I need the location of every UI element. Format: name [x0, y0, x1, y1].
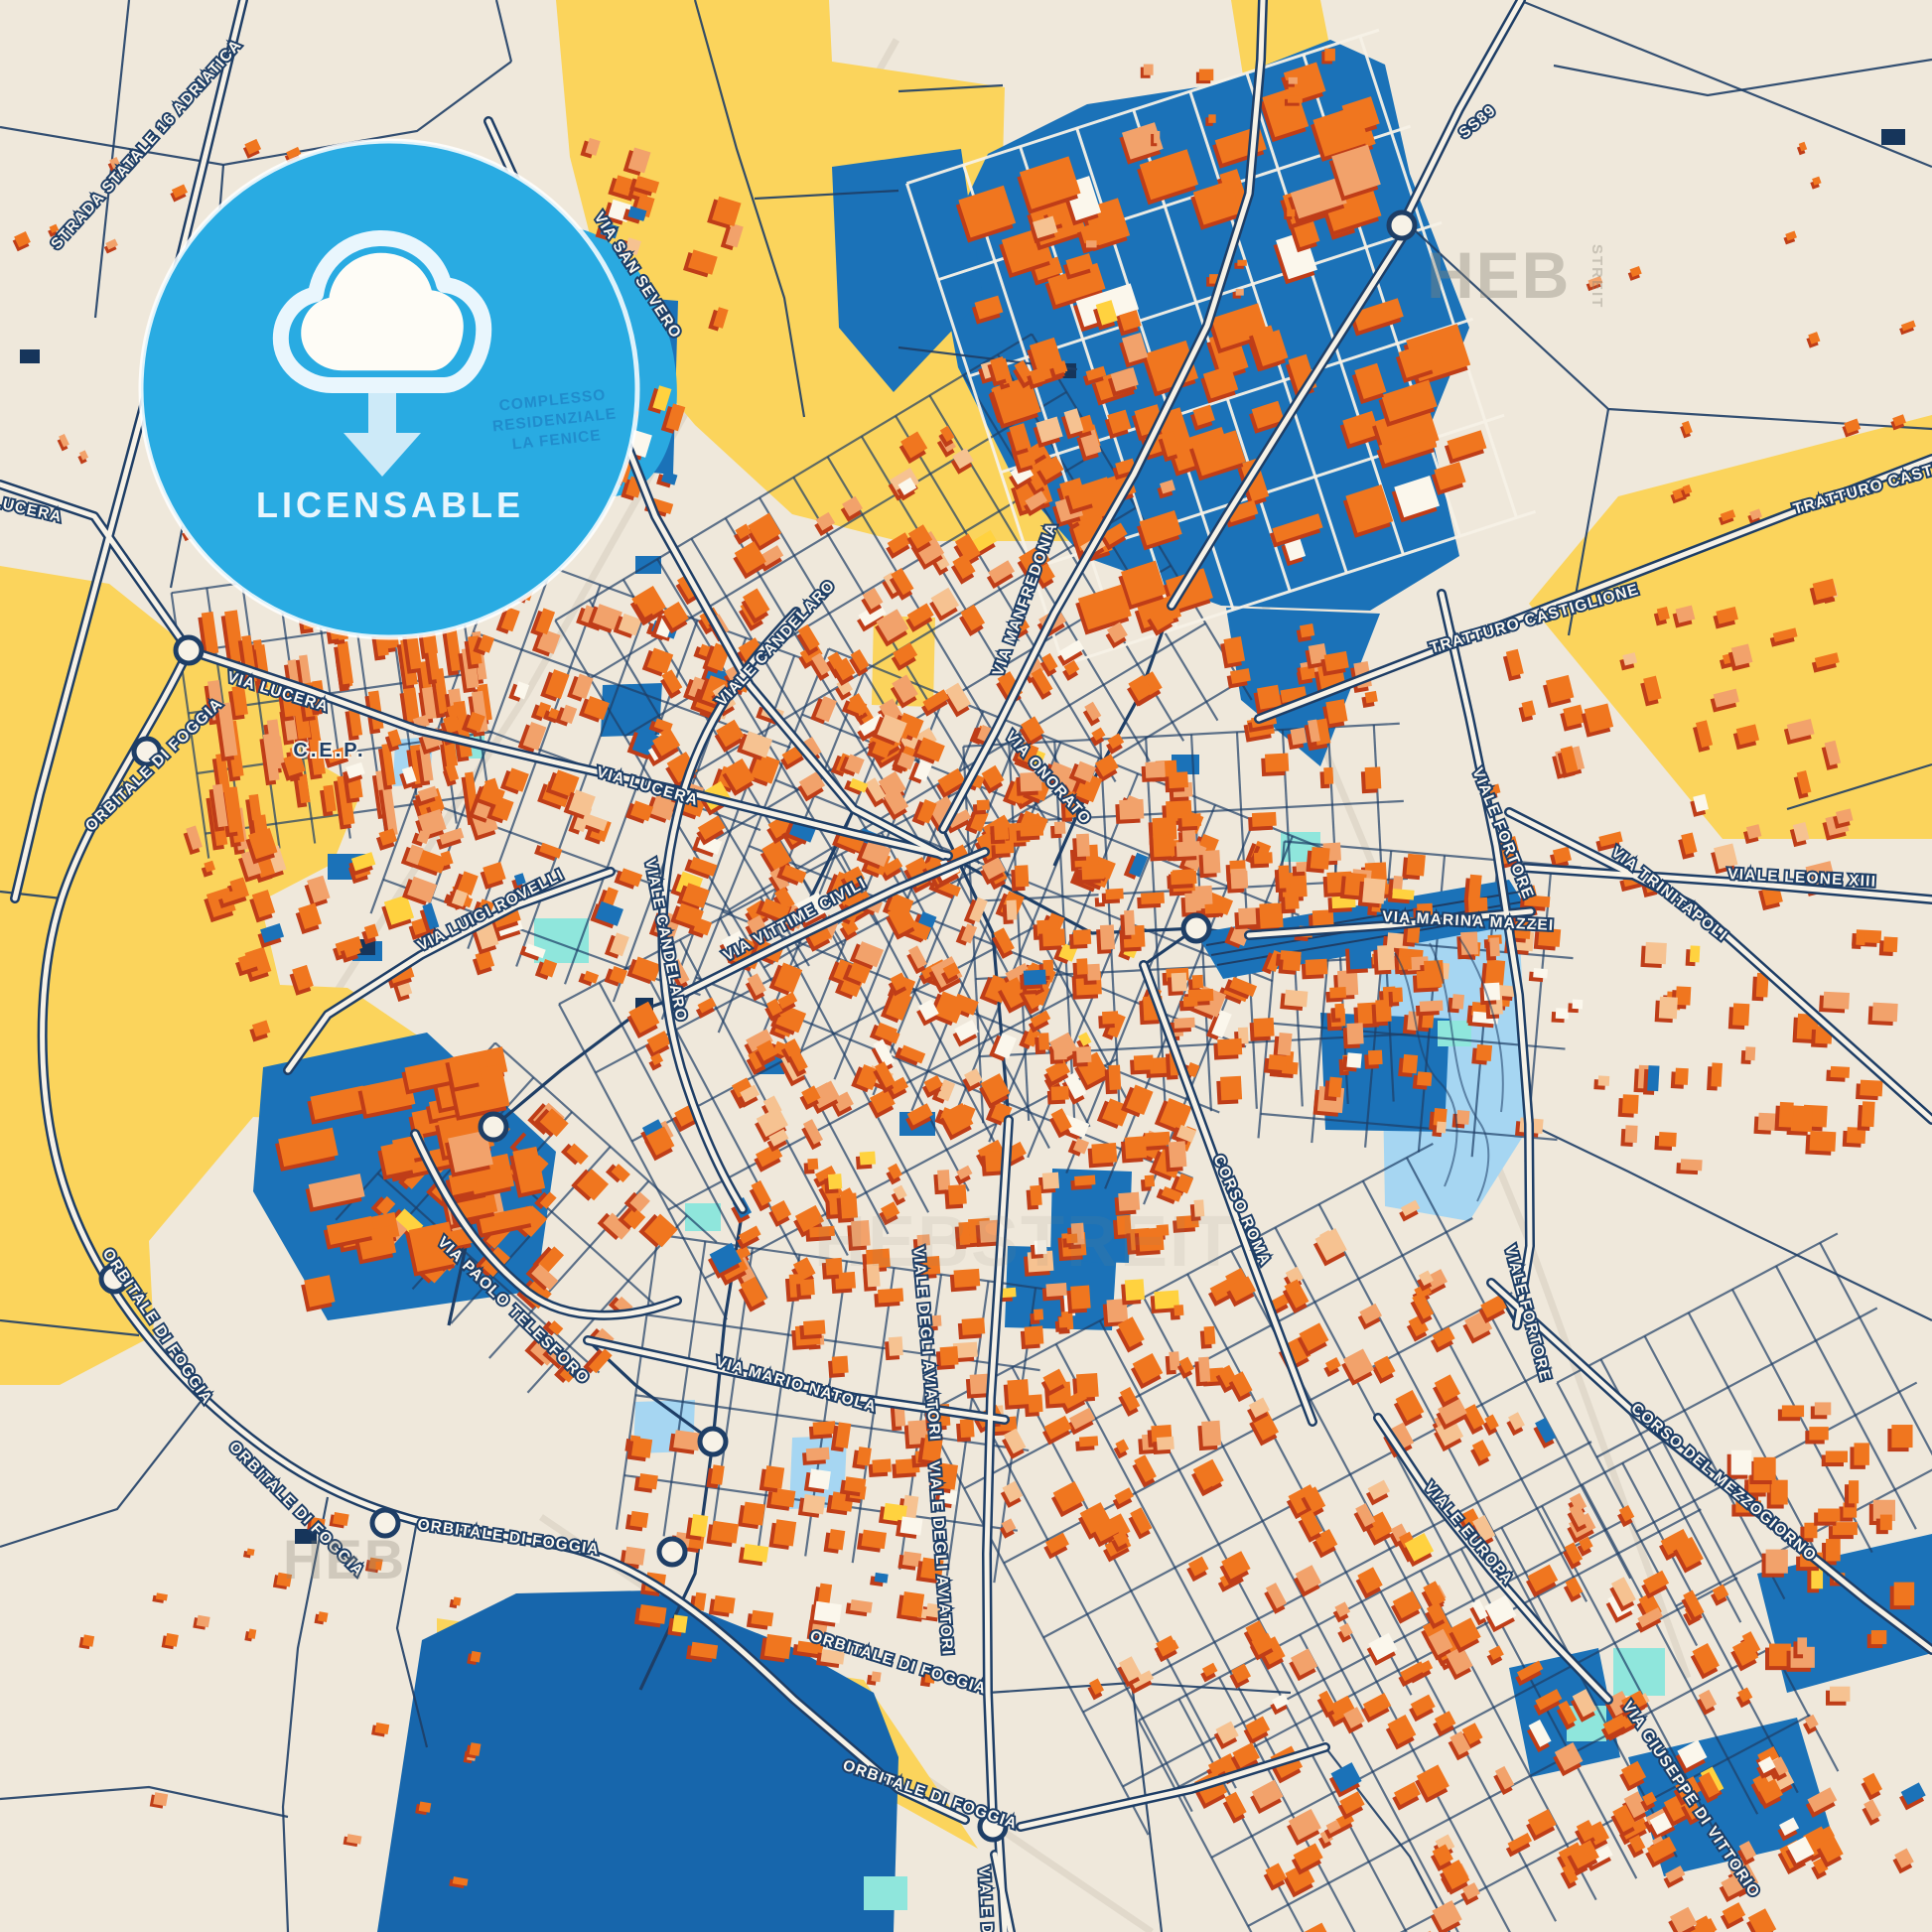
- brand-watermark: STREIT: [1588, 244, 1605, 309]
- brand-watermark: HEB: [1427, 238, 1571, 312]
- roundabout: [700, 1429, 726, 1454]
- roundabout: [1389, 212, 1415, 238]
- map-poster: STRADA STATALE 16 ADRIATICAVIA SAN SEVER…: [0, 0, 1932, 1932]
- brand-watermark: HEBSTREIT: [814, 1202, 1237, 1282]
- roundabout: [481, 1114, 506, 1140]
- district-label: C.E.P.: [293, 740, 365, 761]
- city-map-canvas: STRADA STATALE 16 ADRIATICAVIA SAN SEVER…: [0, 0, 1932, 1932]
- brand-watermark: HEB: [283, 1528, 406, 1590]
- licensable-badge: LICENSABLECOMPLESSORESIDENZIALELA FENICE: [141, 141, 637, 637]
- roundabout: [659, 1539, 685, 1565]
- roundabout: [176, 637, 202, 663]
- download-arrow-icon: [368, 393, 396, 433]
- roundabout: [1183, 915, 1209, 941]
- badge-label: LICENSABLE: [256, 484, 524, 525]
